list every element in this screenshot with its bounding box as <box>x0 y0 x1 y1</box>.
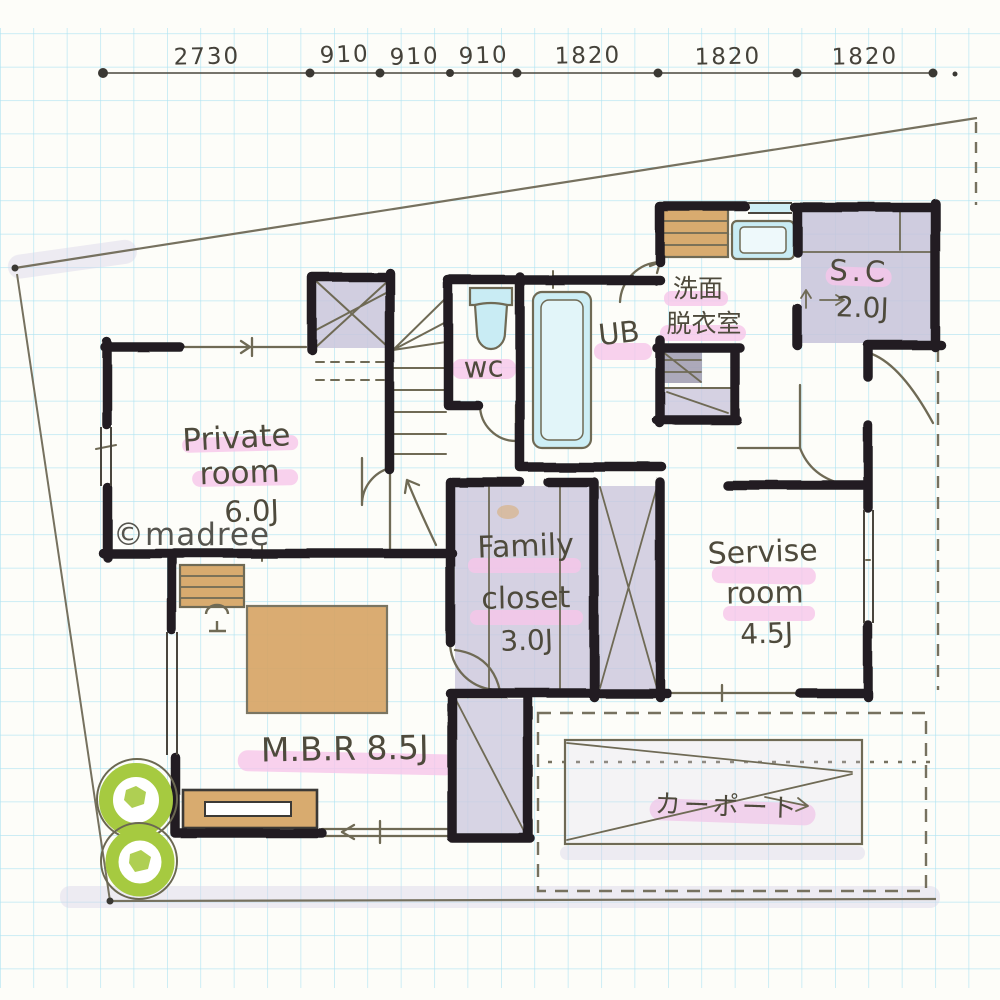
ub-label: UB <box>597 314 641 352</box>
wc-label: wc <box>463 349 504 384</box>
smudge-carport <box>560 846 865 860</box>
sc-size: 2.0J <box>835 290 889 325</box>
dim-910-c: 910 <box>458 42 509 70</box>
bathtub-inner <box>541 300 583 440</box>
private-line2: room <box>199 454 280 493</box>
service-line1: Servise <box>707 533 818 572</box>
sc-name: S.C <box>829 253 890 289</box>
dim-1820-a: 1820 <box>554 42 621 69</box>
washroom-line1: 洗面 <box>673 274 723 303</box>
bush-icon <box>101 823 177 899</box>
boundary-corner-dot-bl <box>107 898 114 905</box>
dim-910-a: 910 <box>319 41 370 69</box>
watermark: ©madree <box>113 517 270 553</box>
service-size: 4.5J <box>740 616 794 651</box>
family-size: 3.0J <box>500 623 554 658</box>
bed <box>247 606 387 713</box>
mbr-dresser-top <box>180 565 244 607</box>
smudge-bottom <box>60 886 940 908</box>
mbr-label: M.B.R 8.5J <box>261 728 429 770</box>
chest-mirror-slot <box>205 802 291 816</box>
stain-spot <box>497 505 519 519</box>
dim-2730: 2730 <box>173 43 240 70</box>
carport-label: カーポート <box>654 789 800 824</box>
dim-910-b: 910 <box>389 43 440 71</box>
toilet-bowl <box>475 303 507 349</box>
service-line2: room <box>726 575 804 611</box>
boundary-corner-dot-tl <box>12 265 19 272</box>
dim-1820-c: 1820 <box>831 43 898 70</box>
bush-icon <box>97 759 177 839</box>
private-line1: Private <box>182 417 292 459</box>
washroom-line2: 脱衣室 <box>666 309 741 338</box>
family-line2: closet <box>481 580 571 617</box>
floor-plan-canvas: 2730 910 910 910 1820 1820 1820 <box>0 0 1000 1000</box>
family-line1: Family <box>477 527 575 565</box>
sink-basin-inner <box>740 227 786 253</box>
window-washroom-glass <box>750 204 790 212</box>
dim-1820-b: 1820 <box>694 43 761 70</box>
